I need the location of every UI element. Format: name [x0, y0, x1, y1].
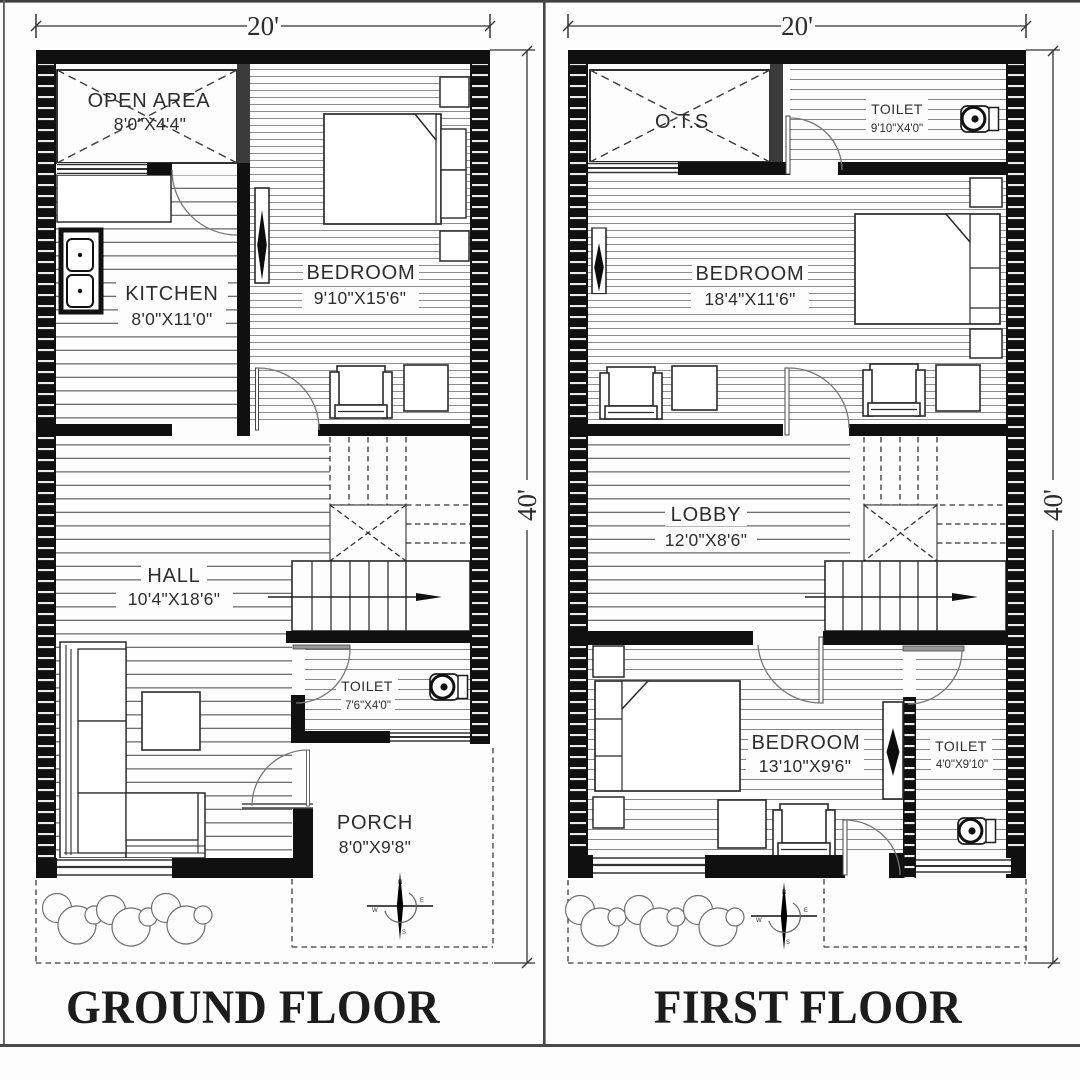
svg-text:8'0"X9'8": 8'0"X9'8" — [339, 837, 411, 857]
svg-text:12'0"X8'6": 12'0"X8'6" — [665, 530, 747, 550]
svg-text:20': 20' — [247, 11, 279, 41]
svg-text:BEDROOM: BEDROOM — [752, 732, 861, 754]
svg-text:40': 40' — [512, 489, 542, 521]
svg-text:4'0"X9'10": 4'0"X9'10" — [936, 759, 988, 771]
svg-text:BEDROOM: BEDROOM — [307, 262, 416, 284]
svg-text:BEDROOM: BEDROOM — [696, 263, 805, 285]
svg-text:8'0"X4'4": 8'0"X4'4" — [114, 114, 186, 134]
svg-text:8'0"X11'0": 8'0"X11'0" — [131, 309, 212, 329]
svg-text:9'10"X15'6": 9'10"X15'6" — [314, 288, 406, 308]
svg-text:13'10"X9'6": 13'10"X9'6" — [759, 756, 851, 776]
svg-text:HALL: HALL — [147, 565, 200, 587]
svg-text:20': 20' — [781, 11, 813, 41]
svg-text:GROUND FLOOR: GROUND FLOOR — [66, 981, 441, 1034]
svg-text:FIRST FLOOR: FIRST FLOOR — [654, 981, 963, 1034]
svg-text:KITCHEN: KITCHEN — [125, 283, 218, 305]
svg-text:TOILET: TOILET — [871, 101, 923, 117]
svg-text:40': 40' — [1038, 489, 1068, 521]
svg-text:9'10"X4'0": 9'10"X4'0" — [871, 123, 923, 135]
svg-text:18'4"X11'6": 18'4"X11'6" — [704, 289, 795, 309]
svg-text:OPEN AREA: OPEN AREA — [88, 90, 211, 112]
svg-text:TOILET: TOILET — [935, 738, 987, 754]
svg-text:7'6"X4'0": 7'6"X4'0" — [345, 700, 391, 712]
svg-text:O.T.S: O.T.S — [655, 111, 709, 133]
svg-text:10'4"X18'6": 10'4"X18'6" — [128, 589, 220, 609]
svg-text:LOBBY: LOBBY — [671, 504, 742, 526]
svg-text:TOILET: TOILET — [341, 678, 393, 694]
svg-text:PORCH: PORCH — [337, 812, 413, 834]
